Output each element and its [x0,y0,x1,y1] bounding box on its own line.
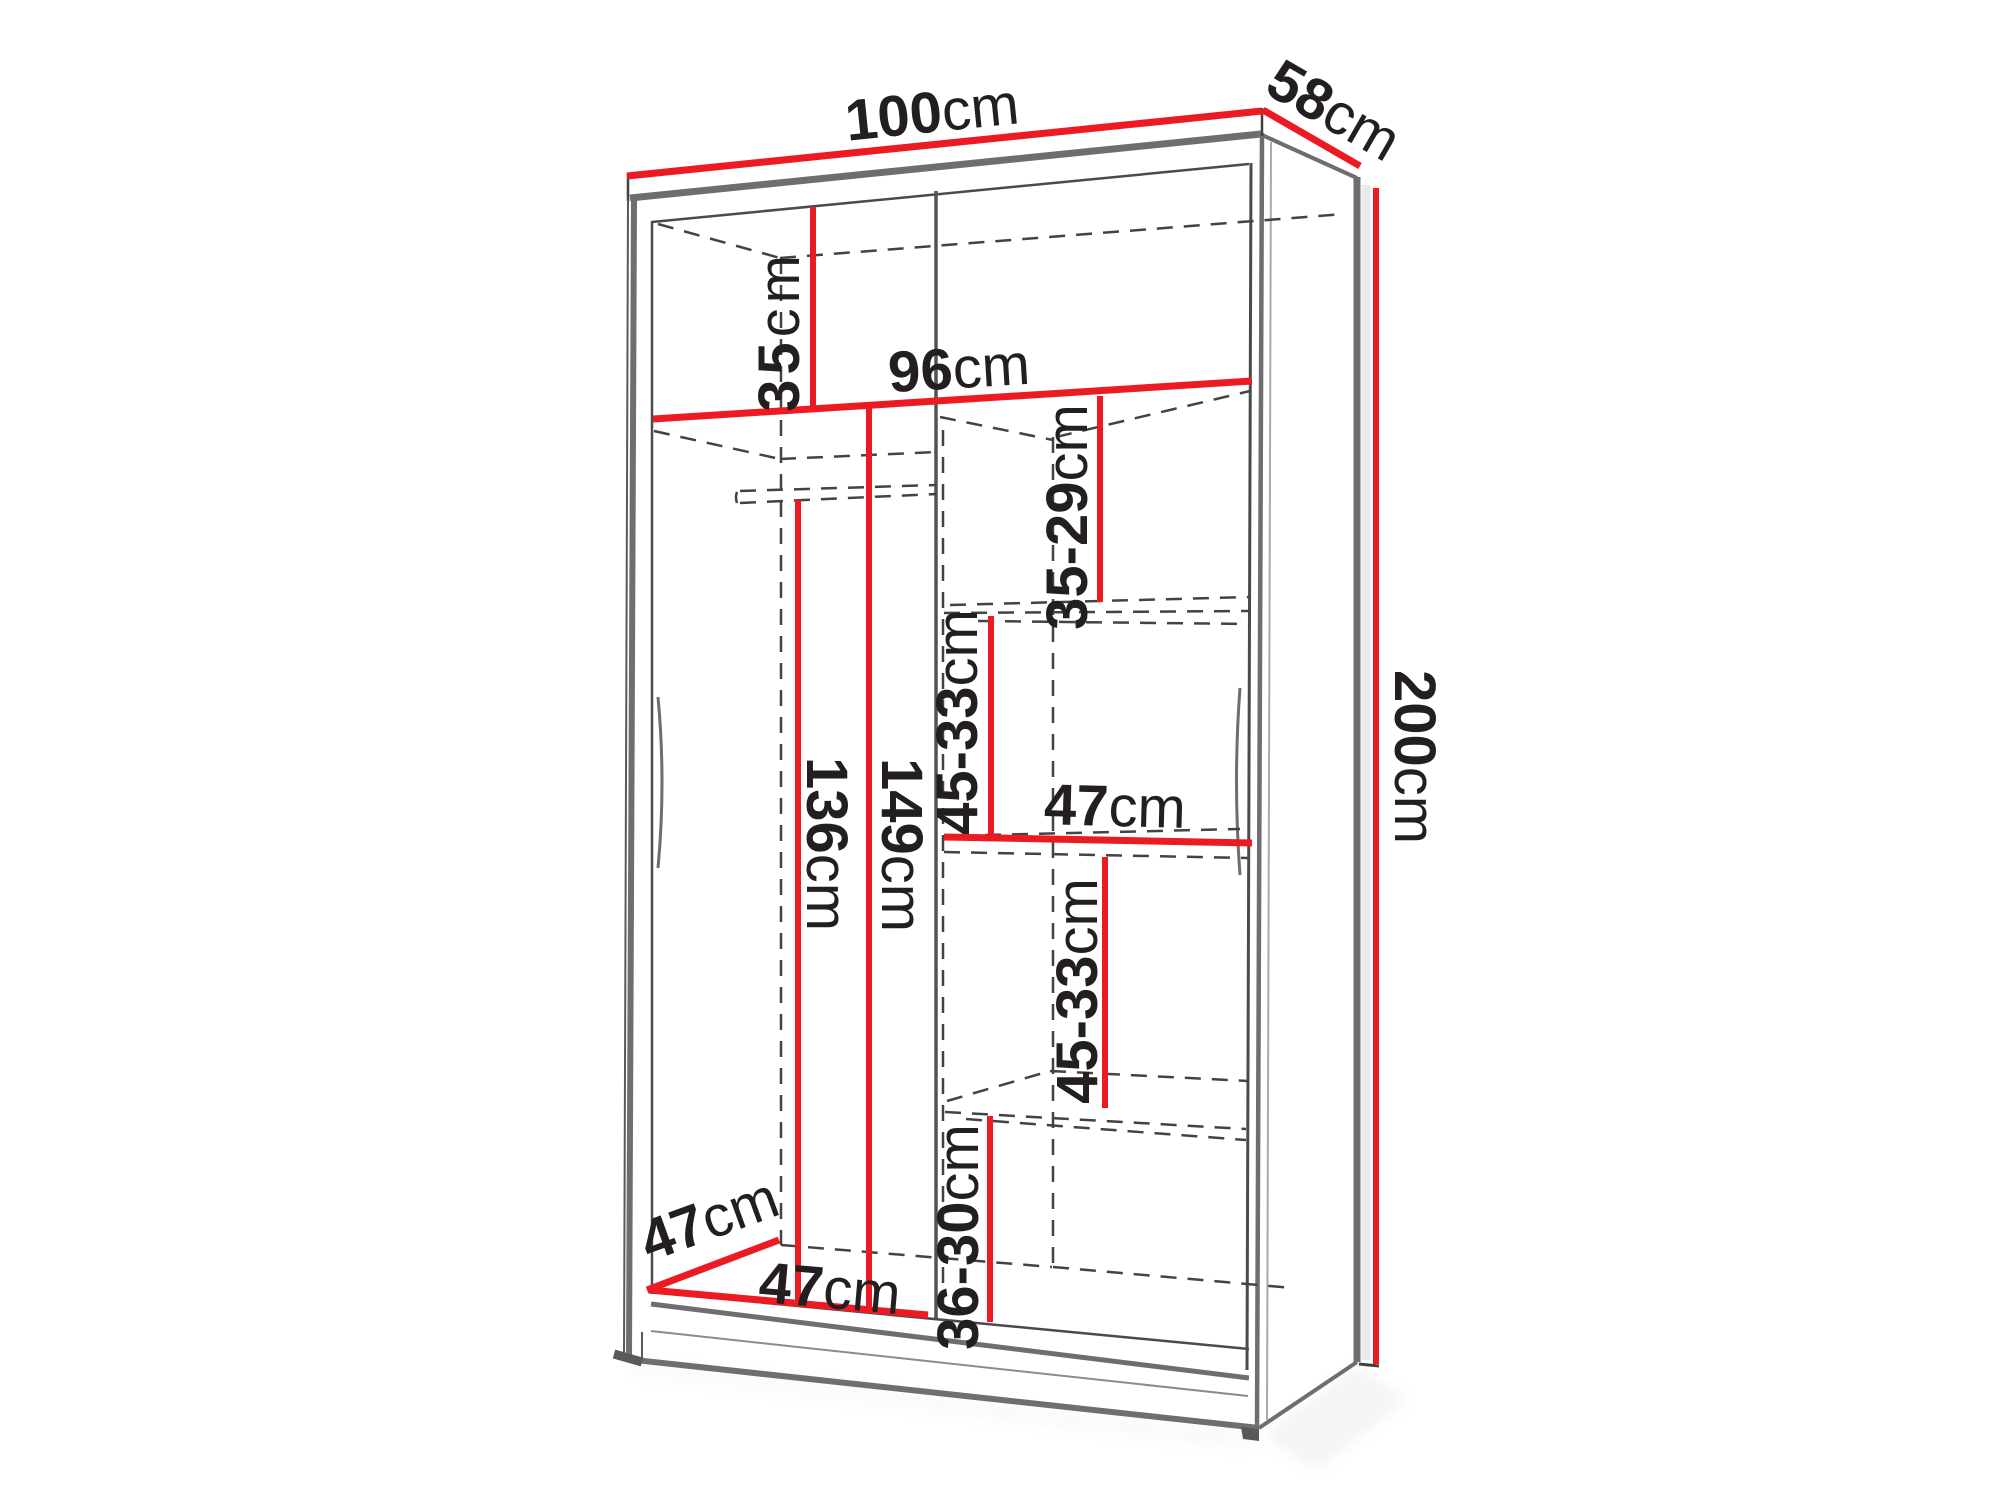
svg-text:47cm: 47cm [1043,772,1186,841]
svg-text:36-30cm: 36-30cm [926,1124,991,1350]
svg-text:96cm: 96cm [886,331,1032,405]
svg-text:136cm: 136cm [795,757,860,931]
svg-text:35-29cm: 35-29cm [1035,404,1100,630]
svg-text:149cm: 149cm [870,758,935,932]
svg-text:35cm: 35cm [747,250,812,412]
svg-text:47cm: 47cm [757,1249,904,1326]
svg-text:200cm: 200cm [1383,670,1448,844]
svg-text:45-33cm: 45-33cm [1045,878,1110,1104]
